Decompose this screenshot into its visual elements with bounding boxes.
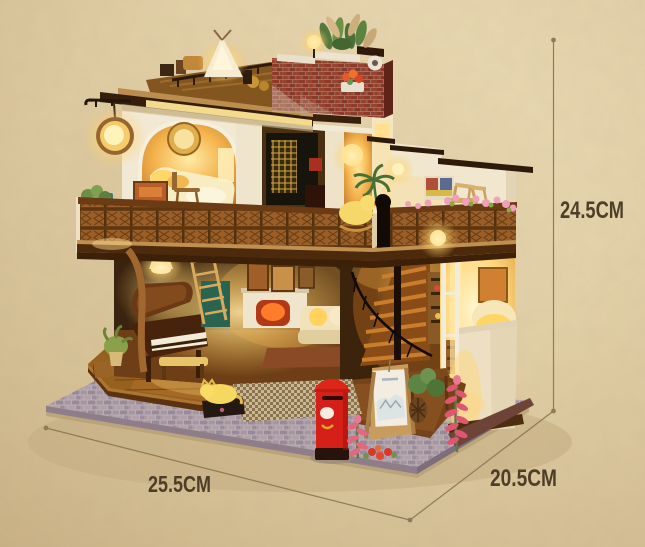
svg-text:20.5CM: 20.5CM	[490, 465, 557, 492]
svg-text:24.5CM: 24.5CM	[560, 197, 624, 224]
svg-text:25.5CM: 25.5CM	[148, 471, 211, 497]
